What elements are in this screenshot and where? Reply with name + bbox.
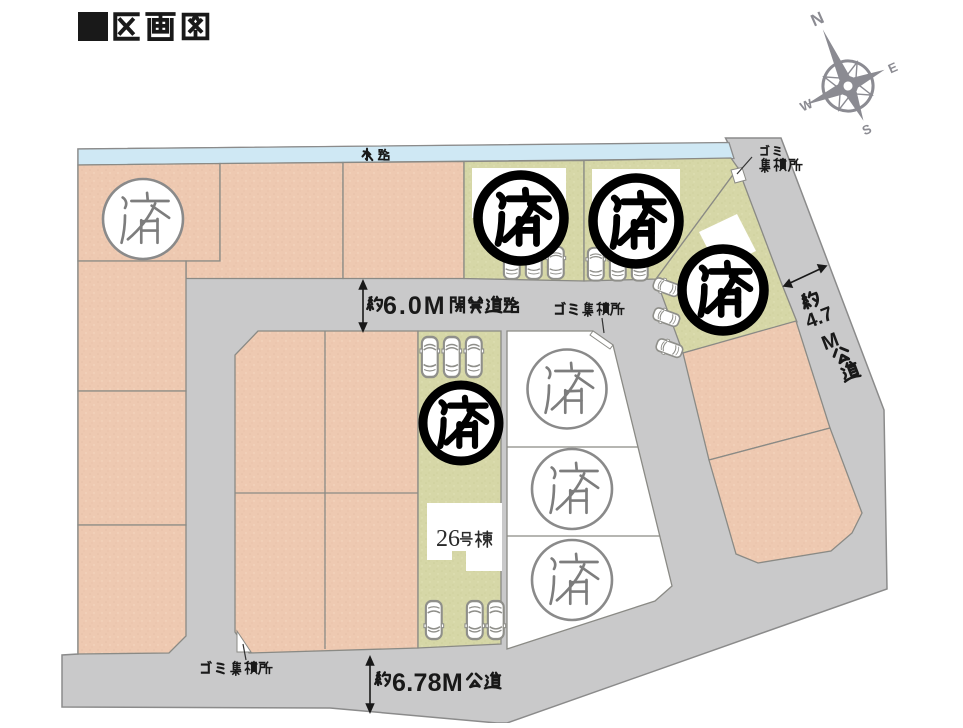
svg-text:6.78M: 6.78M (392, 669, 463, 697)
svg-text:6.0M: 6.0M (383, 292, 447, 320)
svg-text:26: 26 (436, 526, 460, 552)
